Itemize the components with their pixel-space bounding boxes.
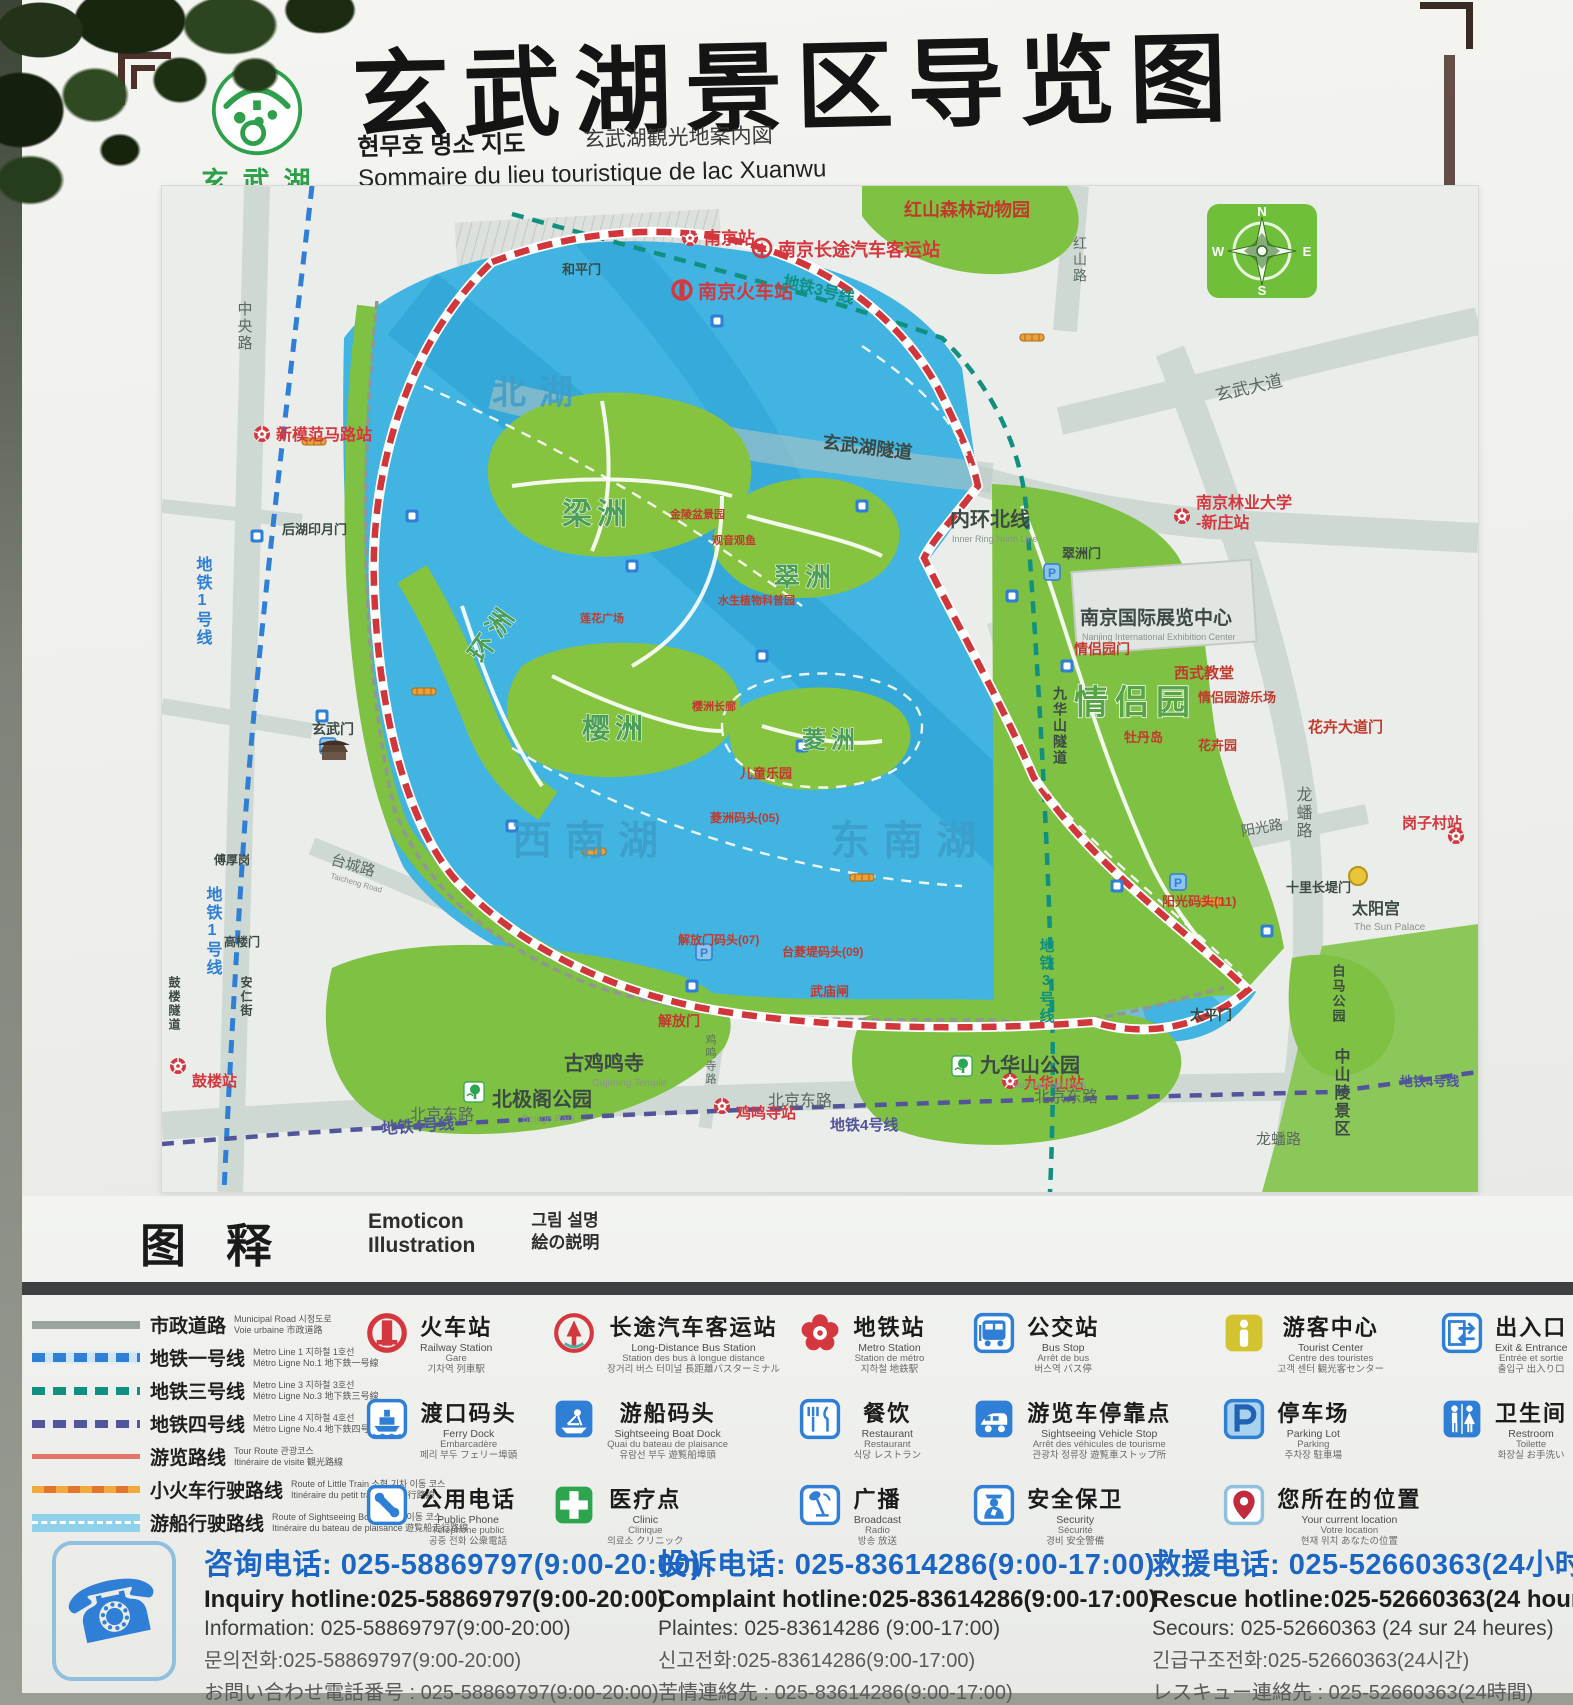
legend-item-kj: 유람선 부두 遊覧船埠頭 bbox=[607, 1451, 728, 1462]
label-peony-island: 牡丹岛 bbox=[1124, 730, 1163, 745]
hotline-en: Complaint hotline:025-83614286(9:00-17:0… bbox=[658, 1586, 1118, 1614]
label-forestry-station2: -新庄站 bbox=[1196, 513, 1249, 532]
legend-item-exit-entrance: 出入口Exit & EntranceEntrée et sortie출입구 出入… bbox=[1439, 1304, 1573, 1390]
label-metro-line1-b: 地铁1号线 bbox=[204, 885, 223, 977]
compass-n: N bbox=[1257, 204, 1266, 219]
subtitle-korean: 현무호 명소 지도 bbox=[357, 131, 525, 162]
legend-item-label: 医疗点 bbox=[607, 1482, 683, 1514]
label-gulou-station: 鼓楼站 bbox=[192, 1072, 237, 1090]
boat-dock-icon bbox=[551, 1396, 597, 1442]
railway-station-icon bbox=[364, 1310, 410, 1356]
label-gaoloumen: 高楼门 bbox=[224, 934, 260, 949]
legend-grid: 市政道路Municipal Road 시정도로Voie urbaine 市政道路… bbox=[32, 1304, 1573, 1562]
legend-line-row: 地铁三号线Metro Line 3 지하철 3호선Métro Ligne No.… bbox=[32, 1374, 364, 1407]
restaurant-icon bbox=[797, 1396, 843, 1442]
legend-line-row: 游览路线Tour Route 관광코스Itinéraire de visite … bbox=[32, 1440, 364, 1473]
legend-line-label: 小火车行驶路线 bbox=[150, 1476, 283, 1503]
compass-e: E bbox=[1303, 244, 1312, 259]
hotline-block-1: 咨询电话: 025-58869797(9:00-20:00)Inquiry ho… bbox=[204, 1541, 624, 1705]
legend-line-sub1: Tour Route 관광코스 bbox=[234, 1446, 343, 1457]
parking-icon bbox=[1221, 1396, 1267, 1442]
legend-item-kj: 버스역 バス停 bbox=[1027, 1365, 1099, 1376]
frame-ornament bbox=[118, 52, 171, 105]
label-qinglv-gate: 情侣园门 bbox=[1074, 641, 1130, 657]
legend-line-sub2: Métro Ligne No.1 地下鉄一号線 bbox=[253, 1358, 379, 1369]
legend-item-label: 您所在的位置 bbox=[1277, 1482, 1421, 1514]
legend-line-label: 地铁三号线 bbox=[150, 1377, 245, 1404]
label-shilichangdi-gate: 十里长堤门 bbox=[1286, 880, 1351, 895]
legend-line-sub1: Municipal Road 시정도로 bbox=[234, 1314, 332, 1325]
label-lotus-square: 莲花广场 bbox=[580, 611, 624, 625]
photo-edge bbox=[0, 0, 22, 1693]
hotline-l3: Plaintes: 025-83614286 (9:00-17:00) bbox=[658, 1617, 1118, 1641]
label-children-park: 儿童乐园 bbox=[739, 766, 792, 781]
hotline-en: Inquiry hotline:025-58869797(9:00-20:00) bbox=[204, 1586, 624, 1614]
legend-item-parking: 停车场Parking LotParking주차장 駐車場 bbox=[1221, 1390, 1439, 1476]
label-southeast-lake: 东南湖 bbox=[830, 819, 989, 863]
legend-item-metro-station: 地铁站Metro StationStation de métro지하철 地鉄駅 bbox=[797, 1304, 971, 1390]
label-metro-line1: 地铁1号线 bbox=[194, 555, 213, 647]
legend-item-kj: 식당 レストラン bbox=[853, 1451, 921, 1462]
label-nanjing-station: 南京站 bbox=[704, 228, 755, 248]
hotline-l3: Secours: 025-52660363 (24 sur 24 heures) bbox=[1152, 1617, 1573, 1641]
train-line-sample bbox=[32, 1486, 140, 1493]
label-gujiming-temple-en: Gujiming Temple bbox=[592, 1078, 667, 1089]
legend-item-kj: 페리 부두 フェリー埠頭 bbox=[420, 1451, 517, 1462]
legend-item-kj: 주차장 駐車場 bbox=[1277, 1451, 1349, 1462]
legend-item-restaurant: 餐饮RestaurantRestaurant식당 レストラン bbox=[797, 1390, 971, 1476]
municipal-line-sample bbox=[32, 1321, 140, 1329]
label-zhongyang-road: 中央路 bbox=[236, 301, 253, 352]
legend-item-ferry-dock: 渡口码头Ferry DockEmbarcadère페리 부두 フェリー埠頭 bbox=[364, 1390, 551, 1476]
label-metro-line4-b: 地铁4号线 bbox=[830, 1116, 898, 1134]
label-aquatic-garden: 水生植物科普园 bbox=[718, 593, 795, 607]
legend-line-label: 游览路线 bbox=[150, 1443, 226, 1470]
label-gujiming-temple: 古鸡鸣寺 bbox=[564, 1051, 644, 1075]
legend-line-styles: 市政道路Municipal Road 시정도로Voie urbaine 市政道路… bbox=[32, 1304, 364, 1562]
legend-item-label: 火车站 bbox=[420, 1310, 492, 1342]
legend-title-en: Emoticon Illustration bbox=[368, 1210, 475, 1258]
legend-item-tourist-center: 游客中心Tourist CenterCentre des touristes고객… bbox=[1221, 1304, 1439, 1390]
bus-stop-icon bbox=[971, 1310, 1017, 1356]
public-phone-icon bbox=[364, 1482, 410, 1528]
subtitle-japanese: 玄武湖観光地案内図 bbox=[583, 124, 772, 151]
clinic-icon bbox=[551, 1482, 597, 1528]
legend-item-label: 公用电话 bbox=[420, 1482, 516, 1514]
label-southwest-lake: 西南湖 bbox=[512, 819, 671, 863]
label-qinglv-garden: 情侣园 bbox=[1074, 684, 1197, 722]
hotline-ja: 苦情連絡先 : 025-83614286(9:00-17:00) bbox=[658, 1676, 1118, 1705]
label-bus-terminal: 南京长途汽车客运站 bbox=[778, 239, 940, 260]
legend-item-label: 地铁站 bbox=[853, 1310, 925, 1342]
label-inner-ring: 内环北线 bbox=[950, 507, 1030, 531]
label-playground: 情侣园游乐场 bbox=[1198, 690, 1276, 705]
hotline-block-2: 投诉电话: 025-83614286(9:00-17:00)Complaint … bbox=[658, 1541, 1118, 1705]
legend-item-kj: 관광차 정류장 遊覧車ストップ所 bbox=[1027, 1451, 1171, 1462]
metro3-line-sample bbox=[32, 1387, 140, 1395]
parking-glyph: P bbox=[1048, 566, 1056, 580]
label-lingzhou-dock: 菱洲码头(05) bbox=[710, 810, 779, 825]
legend-item-label: 长途汽车客运站 bbox=[607, 1310, 780, 1342]
legend-line-row: 地铁一号线Metro Line 1 지하철 1호선Métro Ligne No.… bbox=[32, 1341, 364, 1374]
legend-line-sub2: Métro Ligne No.4 地下鉄四号線 bbox=[253, 1424, 379, 1435]
label-liangzhou: 梁洲 bbox=[562, 498, 632, 531]
legend-item-boat-dock: 游船码头Sightseeing Boat DockQuai du bateau … bbox=[551, 1390, 797, 1476]
label-hongshan-zoo: 红山森林动物园 bbox=[904, 199, 1030, 220]
label-zhongshanling: 中山陵景区 bbox=[1332, 1047, 1351, 1138]
label-houhu-gate: 后湖印月门 bbox=[282, 522, 347, 537]
legend-item-restroom: 卫生间RestroomToilette화장실 お手洗い bbox=[1439, 1390, 1573, 1476]
label-yangguang-dock: 阳光码头(11) bbox=[1162, 894, 1236, 909]
xuanwu-lake-map: N W E S bbox=[162, 186, 1478, 1192]
label-tailing-dock: 台菱堤码头(09) bbox=[782, 944, 863, 959]
metro1-line-sample bbox=[32, 1351, 140, 1364]
label-jiuhuashan-park: 九华山公园 bbox=[979, 1053, 1080, 1077]
legend-line-label: 地铁四号线 bbox=[150, 1410, 245, 1437]
label-bonsai-garden: 金陵盆景园 bbox=[669, 507, 725, 521]
legend-item-label: 出入口 bbox=[1495, 1310, 1567, 1342]
map-board: 玄武湖 XUAN WU LAKE 玄武湖景区导览图 현무호 명소 지도 玄武湖観… bbox=[22, 0, 1573, 1693]
legend-item-label: 卫生间 bbox=[1495, 1396, 1567, 1428]
label-beijing-east-road-2: 北京东路 bbox=[768, 1092, 832, 1110]
legend-line-row: 小火车行驶路线Route of Little Train 소형 기차 이동 코스… bbox=[32, 1473, 364, 1506]
label-jimingsi-road: 鸡鸣寺路 bbox=[704, 1033, 717, 1086]
legend-line-row: 游船行驶路线Route of Sightseeing Boat 유람선 이동 코… bbox=[32, 1506, 364, 1539]
map-panel: N W E S bbox=[162, 186, 1478, 1192]
tourist-center-icon bbox=[1221, 1310, 1267, 1356]
legend-item-label: 广播 bbox=[853, 1482, 901, 1514]
label-gulou-tunnel: 鼓楼隧道 bbox=[167, 975, 181, 1032]
legend-column: 公交站Bus StopArrêt de bus버스역 バス停游览车停靠点Sigh… bbox=[971, 1304, 1221, 1562]
legend-line-label: 游船行驶路线 bbox=[150, 1509, 264, 1536]
hotline-zh: 咨询电话: 025-58869797(9:00-20:00) bbox=[204, 1541, 624, 1583]
legend-line-sub2: Voie urbaine 市政道路 bbox=[234, 1325, 332, 1336]
legend-line-sub1: Metro Line 3 지하철 3호선 bbox=[253, 1380, 379, 1391]
label-yingzhou: 樱洲 bbox=[582, 713, 648, 744]
ferry-dock-icon bbox=[364, 1396, 410, 1442]
legend-item-kj: 고객 센터 観光客センター bbox=[1277, 1365, 1384, 1376]
label-metro-line3-b: 地铁3号线 bbox=[1038, 937, 1055, 1025]
legend-item-kj: 장거리 버스 터미널 長距離バスターミナル bbox=[607, 1365, 780, 1376]
legend-item-label: 停车场 bbox=[1277, 1396, 1349, 1428]
metro-station-icon bbox=[797, 1310, 843, 1356]
legend-item-label: 餐饮 bbox=[853, 1396, 921, 1428]
label-metro-line4-c: 地铁4号线 bbox=[1400, 1074, 1459, 1089]
label-north-lake: 北湖 bbox=[492, 374, 586, 412]
boat-line-sample bbox=[32, 1514, 140, 1532]
exit-entrance-icon bbox=[1439, 1310, 1485, 1356]
label-beijige-park: 北极阁公园 bbox=[492, 1087, 592, 1111]
hotline-en: Rescue hotline:025-52660363(24 hours) bbox=[1152, 1586, 1573, 1614]
legend-line-sub2: Métro Ligne No.3 地下鉄三号線 bbox=[253, 1391, 379, 1402]
hotline-section: ☎ 咨询电话: 025-58869797(9:00-20:00)Inquiry … bbox=[52, 1541, 1573, 1705]
legend-title-kj: 그림 설명 絵の説明 bbox=[531, 1210, 599, 1254]
compass-w: W bbox=[1212, 244, 1225, 259]
telephone-icon: ☎ bbox=[52, 1541, 176, 1681]
legend-item-sightseeing-vehicle: 游览车停靠点Sightseeing Vehicle StopArrêt des … bbox=[971, 1390, 1221, 1476]
legend-item-label: 渡口码头 bbox=[420, 1396, 517, 1428]
label-sun-palace-en: The Sun Palace bbox=[1354, 922, 1426, 933]
legend-item-kj: 기차역 列車駅 bbox=[420, 1365, 492, 1376]
broadcast-icon bbox=[797, 1482, 843, 1528]
hotline-l3: Information: 025-58869797(9:00-20:00) bbox=[204, 1617, 624, 1641]
label-xuanwu-gate: 玄武门 bbox=[312, 721, 354, 737]
label-hongshan-road: 红山路 bbox=[1072, 236, 1088, 284]
label-fuhougang: 傅厚岗 bbox=[213, 852, 250, 867]
legend-line-sub1: Metro Line 1 지하철 1호선 bbox=[253, 1347, 379, 1358]
metro4-line-sample bbox=[32, 1420, 140, 1428]
compass-s: S bbox=[1258, 283, 1267, 298]
legend-item-railway-station: 火车站Railway StationGare기차역 列車駅 bbox=[364, 1304, 551, 1390]
legend-item-kj: 화장실 お手洗い bbox=[1495, 1451, 1567, 1462]
label-nanjing-railway-station: 南京火车站 bbox=[698, 280, 793, 303]
legend-line-sub2: Itinéraire de visite 観光路線 bbox=[234, 1457, 343, 1468]
label-longpan-road: 龙蟠路 bbox=[1294, 786, 1313, 840]
legend-item-label: 公交站 bbox=[1027, 1310, 1099, 1342]
hotline-zh: 投诉电话: 025-83614286(9:00-17:00) bbox=[658, 1541, 1118, 1583]
label-forestry-station: 南京林业大学 bbox=[1196, 493, 1292, 512]
legend-item-label: 游客中心 bbox=[1277, 1310, 1384, 1342]
parking-glyph: P bbox=[1174, 876, 1182, 890]
logo-pavilion-icon bbox=[209, 62, 305, 158]
legend-item-bus-stop: 公交站Bus StopArrêt de bus버스역 バス停 bbox=[971, 1304, 1221, 1390]
tour-line-sample bbox=[32, 1454, 140, 1459]
hotline-ko: 신고전화:025-83614286(9:00-17:00) bbox=[658, 1644, 1118, 1673]
label-heping-gate: 和平门 bbox=[562, 262, 601, 277]
sightseeing-vehicle-icon bbox=[971, 1396, 1017, 1442]
label-sun-palace: 太阳宫 bbox=[1351, 899, 1400, 918]
label-cuizhou-gate: 翠洲门 bbox=[1062, 546, 1101, 561]
label-jiuhuashan-tunnel: 九华山隧道 bbox=[1052, 686, 1068, 766]
legend-line-row: 市政道路Municipal Road 시정도로Voie urbaine 市政道路 bbox=[32, 1308, 364, 1341]
security-icon bbox=[971, 1482, 1017, 1528]
label-jiuhuashan-park-en: Jiuhuashan Park bbox=[1012, 1080, 1087, 1091]
legend-divider-bar bbox=[22, 1282, 1573, 1295]
hotline-zh: 救援电话: 025-52660363(24小时) bbox=[1152, 1541, 1573, 1583]
label-taiping-gate: 太平门 bbox=[1190, 1007, 1232, 1023]
compass: N W E S bbox=[1207, 204, 1317, 298]
label-xinmofanmalu-station: 新模范马路站 bbox=[276, 425, 372, 444]
legend-line-label: 市政道路 bbox=[150, 1311, 226, 1338]
label-guanyin: 观音观鱼 bbox=[712, 533, 756, 547]
parking-glyph: P bbox=[700, 946, 708, 960]
label-longpan-road-2: 龙蟠路 bbox=[1256, 1131, 1301, 1148]
label-wumiaozha: 武庙闸 bbox=[810, 984, 849, 999]
label-inner-ring-en: Inner Ring North Line bbox=[952, 534, 1038, 544]
label-church: 西式教堂 bbox=[1174, 664, 1234, 682]
hotline-block-3: 救援电话: 025-52660363(24小时)Rescue hotline:0… bbox=[1152, 1541, 1573, 1705]
legend-column: 长途汽车客运站Long-Distance Bus StationStation … bbox=[551, 1304, 797, 1562]
legend-column: 出入口Exit & EntranceEntrée et sortie출입구 出入… bbox=[1439, 1304, 1573, 1562]
legend-item-kj: 지하철 地鉄駅 bbox=[853, 1365, 925, 1376]
long-distance-bus-icon bbox=[551, 1310, 597, 1356]
label-baima-park: 白马公园 bbox=[1331, 963, 1346, 1024]
legend-line-row: 地铁四号线Metro Line 4 지하철 4호선Métro Ligne No.… bbox=[32, 1407, 364, 1440]
label-flower-avenue-gate: 花卉大道门 bbox=[1308, 718, 1383, 736]
label-cuizhou: 翠洲 bbox=[774, 562, 836, 592]
legend-panel: 图释 Emoticon Illustration 그림 설명 絵の説明 市政道路… bbox=[22, 1196, 1573, 1693]
legend-column: 火车站Railway StationGare기차역 列車駅渡口码头Ferry D… bbox=[364, 1304, 551, 1562]
restroom-icon bbox=[1439, 1396, 1485, 1442]
label-jiefangmen-dock: 解放门码头(07) bbox=[678, 932, 759, 947]
legend-line-sub1: Metro Line 4 지하철 4호선 bbox=[253, 1413, 379, 1424]
current-location-icon bbox=[1221, 1482, 1267, 1528]
legend-header: 图释 Emoticon Illustration 그림 설명 絵の説明 bbox=[140, 1210, 599, 1276]
legend-item-label: 安全保卫 bbox=[1027, 1482, 1123, 1514]
label-jiefang-gate: 解放门 bbox=[658, 1013, 700, 1029]
label-exhibition-center: 南京国际展览中心 bbox=[1080, 606, 1232, 629]
label-lingzhou: 菱洲 bbox=[802, 727, 860, 754]
hotline-ja: レスキュー連絡先 : 025-52660363(24時間) bbox=[1152, 1676, 1573, 1705]
label-yingzhou-corridor: 樱洲长廊 bbox=[692, 699, 736, 713]
legend-line-label: 地铁一号线 bbox=[150, 1344, 245, 1371]
hotline-ko: 긴급구조전화:025-52660363(24시간) bbox=[1152, 1644, 1573, 1673]
hotline-ja: お問い合わせ電話番号 : 025-58869797(9:00-20:00) bbox=[204, 1676, 624, 1705]
label-gangzicun-station: 岗子村站 bbox=[1402, 814, 1462, 832]
legend-item-label: 游船码头 bbox=[607, 1396, 728, 1428]
legend-title-zh: 图释 bbox=[140, 1210, 312, 1276]
legend-item-long-distance-bus: 长途汽车客运站Long-Distance Bus StationStation … bbox=[551, 1304, 797, 1390]
legend-item-label: 游览车停靠点 bbox=[1027, 1396, 1171, 1428]
legend-column: 游客中心Tourist CenterCentre des touristes고객… bbox=[1221, 1304, 1439, 1562]
label-anrenjie: 安仁街 bbox=[239, 975, 253, 1018]
hotline-ko: 문의전화:025-58869797(9:00-20:00) bbox=[204, 1644, 624, 1673]
legend-column: 地铁站Metro StationStation de métro지하철 地鉄駅餐… bbox=[797, 1304, 971, 1562]
label-flower-garden: 花卉园 bbox=[1198, 738, 1237, 753]
label-beijige-park-en: Beijige Park bbox=[522, 1114, 576, 1125]
legend-item-kj: 출입구 出入り口 bbox=[1495, 1365, 1567, 1376]
